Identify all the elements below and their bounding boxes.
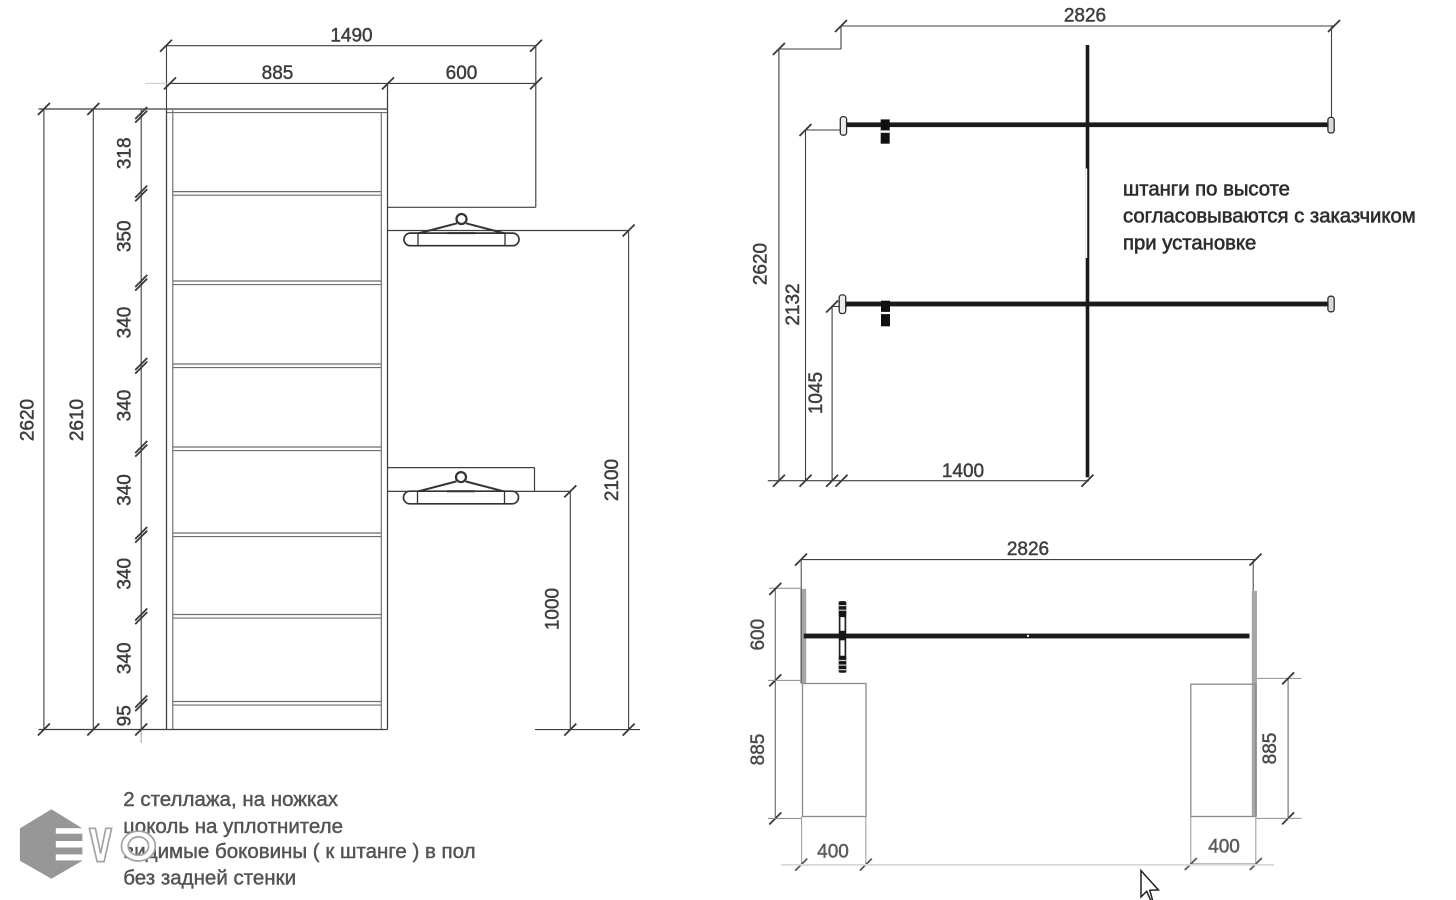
- svg-text:2100: 2100: [602, 459, 623, 501]
- svg-text:95: 95: [115, 705, 136, 726]
- svg-text:885: 885: [1260, 733, 1281, 765]
- svg-text:340: 340: [115, 642, 136, 674]
- svg-text:2132: 2132: [783, 283, 804, 325]
- svg-text:2610: 2610: [67, 399, 88, 441]
- svg-text:видимые боковины ( к штанге ): видимые боковины ( к штанге ) в пол: [123, 840, 475, 863]
- svg-text:340: 340: [115, 390, 136, 422]
- svg-text:1400: 1400: [942, 461, 984, 482]
- svg-text:2826: 2826: [1064, 6, 1106, 27]
- svg-text:1490: 1490: [330, 26, 372, 47]
- svg-text:при установке: при установке: [1123, 233, 1256, 255]
- svg-text:340: 340: [115, 558, 136, 590]
- svg-text:без задней стенки: без задней стенки: [123, 867, 296, 890]
- svg-text:штанги по высоте: штанги по высоте: [1123, 179, 1290, 201]
- svg-text:2 стеллажа, на ножках: 2 стеллажа, на ножках: [123, 788, 338, 811]
- svg-text:согласовываются с заказчиком: согласовываются с заказчиком: [1123, 206, 1416, 228]
- svg-text:2620: 2620: [18, 399, 39, 441]
- svg-text:350: 350: [115, 220, 136, 252]
- svg-text:1045: 1045: [806, 372, 827, 414]
- svg-text:400: 400: [817, 842, 849, 863]
- svg-text:885: 885: [748, 734, 769, 766]
- svg-text:2620: 2620: [750, 243, 771, 285]
- svg-text:340: 340: [115, 307, 136, 339]
- svg-text:885: 885: [262, 63, 294, 84]
- svg-text:600: 600: [748, 619, 769, 651]
- svg-text:600: 600: [446, 63, 478, 84]
- svg-text:340: 340: [115, 474, 136, 506]
- svg-text:318: 318: [115, 137, 136, 169]
- svg-text:400: 400: [1208, 837, 1240, 858]
- svg-text:2826: 2826: [1007, 539, 1049, 560]
- svg-text:цоколь на уплотнителе: цоколь на уплотнителе: [123, 815, 343, 838]
- svg-text:1000: 1000: [543, 588, 564, 630]
